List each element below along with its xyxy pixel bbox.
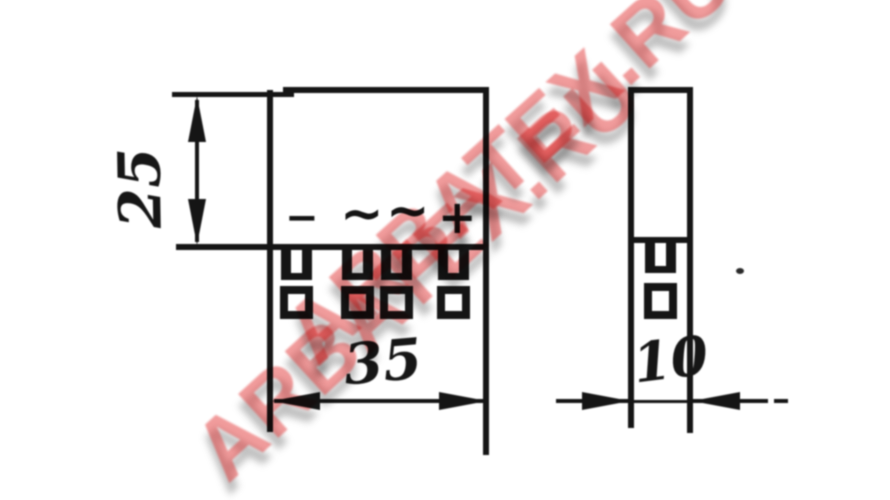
- front-top-edge: [283, 87, 487, 93]
- arrowhead-inward-left-icon: [692, 392, 740, 410]
- side-pin-hole: [644, 283, 677, 319]
- side-pin-slot: [645, 243, 676, 273]
- arrowhead-up-icon: [188, 96, 206, 142]
- depth-dim-label-box: 10: [630, 328, 711, 391]
- depth-dim-shaft-tail: [774, 399, 788, 403]
- arrowhead-down-icon: [188, 199, 206, 245]
- depth-dim-through-line: [630, 400, 692, 403]
- arrowhead-inward-right-icon: [582, 392, 630, 410]
- drawing-canvas: 25 − ~ ~ + 35 10: [0, 0, 890, 500]
- depth-dim-label: 10: [629, 323, 711, 396]
- height-dim-label-box: 25: [97, 132, 183, 243]
- scan-speck: [736, 268, 744, 274]
- height-dim-label: 25: [110, 147, 169, 229]
- arrowhead-right-icon: [439, 392, 487, 410]
- terminal-minus-mark: −: [285, 198, 319, 238]
